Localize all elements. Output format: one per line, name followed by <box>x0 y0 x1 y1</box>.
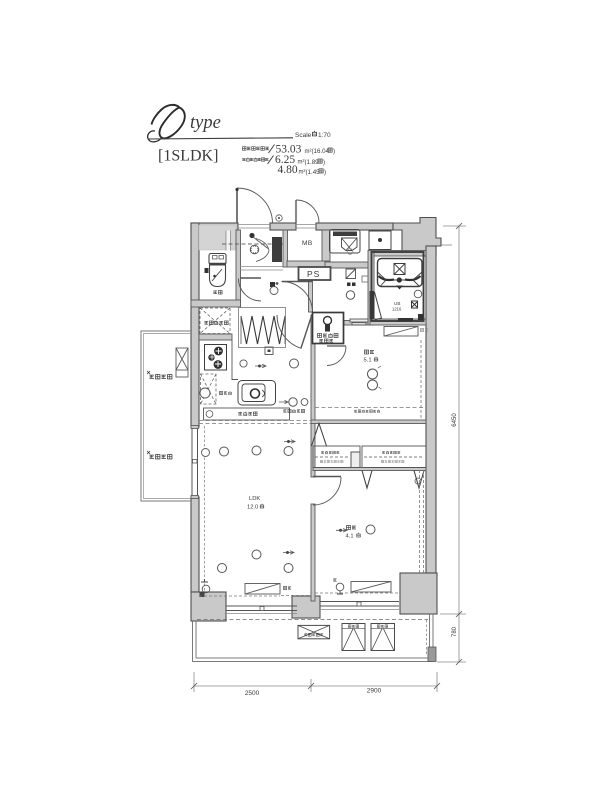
svg-text:(1.89: (1.89 <box>305 159 320 166</box>
svg-text:m²: m² <box>299 169 306 175</box>
svg-text:): ) <box>333 148 335 155</box>
svg-text:[1SLDK]: [1SLDK] <box>158 148 218 165</box>
svg-text:1:70: 1:70 <box>318 132 331 139</box>
svg-text:MB: MB <box>302 240 313 247</box>
svg-text:type: type <box>190 113 221 133</box>
svg-text:4.80: 4.80 <box>278 164 298 176</box>
svg-text:5.1: 5.1 <box>364 358 372 364</box>
svg-text:): ) <box>324 169 326 176</box>
svg-text:UB: UB <box>394 301 400 306</box>
svg-text:Scale: Scale <box>295 132 312 139</box>
svg-text:LDK: LDK <box>249 496 260 502</box>
svg-text:m²: m² <box>305 149 312 155</box>
svg-text:(1.45: (1.45 <box>306 169 321 176</box>
svg-text:): ) <box>323 159 325 166</box>
svg-text:6450: 6450 <box>452 413 458 427</box>
svg-text:m²: m² <box>298 160 305 166</box>
svg-text:2500: 2500 <box>245 690 260 697</box>
svg-text:1216: 1216 <box>392 307 402 312</box>
svg-text:780: 780 <box>452 626 458 637</box>
svg-text:2900: 2900 <box>367 688 382 695</box>
svg-text:(16.04: (16.04 <box>312 148 330 155</box>
svg-text:4.1: 4.1 <box>346 534 354 540</box>
svg-text:12.0: 12.0 <box>247 505 258 511</box>
svg-text:PS: PS <box>307 269 320 279</box>
